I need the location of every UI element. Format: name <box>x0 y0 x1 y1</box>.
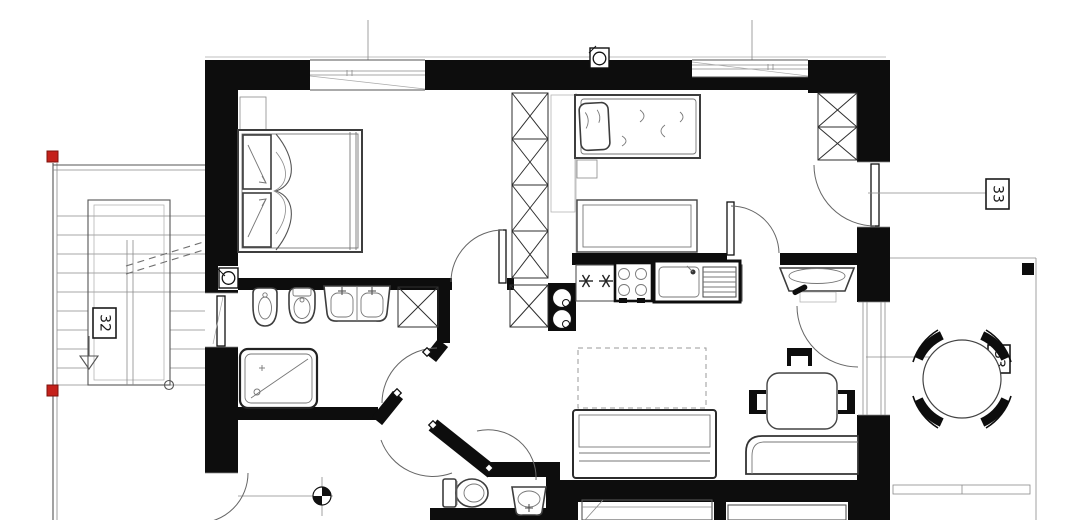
kitchen-wardrobe-x <box>510 285 548 327</box>
living-room <box>573 348 858 478</box>
stair-direction-arrow-icon <box>80 336 98 369</box>
single-bed <box>575 95 700 158</box>
sofa <box>573 410 716 478</box>
bidet <box>253 288 277 326</box>
bedroom2 <box>575 95 779 255</box>
terrace-marker <box>1022 263 1034 275</box>
kitchen <box>553 261 743 329</box>
vent-fan-icon <box>589 46 609 68</box>
nightstand <box>577 160 597 178</box>
dashed-outline <box>578 348 706 408</box>
dining-table <box>767 373 837 429</box>
stair-cut-dashed-line <box>126 240 210 274</box>
bedroom1-door <box>451 230 506 283</box>
shower <box>240 349 317 408</box>
bedroom2-door <box>727 202 779 255</box>
double-washbasin <box>324 286 390 321</box>
bench <box>746 436 858 474</box>
double-bed <box>238 130 362 252</box>
bathroom <box>240 286 438 408</box>
stair-landing <box>88 200 170 385</box>
wall-shelf <box>780 268 854 302</box>
terrace-table <box>923 340 1001 418</box>
landing-door <box>205 293 238 347</box>
building-axis-lines <box>205 20 886 60</box>
entry-door-label: 33 <box>990 185 1006 203</box>
wc-sink <box>512 487 546 515</box>
bedroom2-wardrobe <box>818 93 857 160</box>
red-marker-icon <box>47 385 58 396</box>
hob-burner-marks <box>579 275 613 287</box>
vent-fan-icon <box>218 268 238 288</box>
nightstand <box>240 97 266 131</box>
survey-benchmark-icon <box>238 477 333 516</box>
kitchen-sink <box>654 261 740 302</box>
pillow <box>243 135 271 189</box>
stair-treads <box>57 216 205 385</box>
entry-door <box>814 162 890 227</box>
exterior-door-swing <box>198 473 248 520</box>
terrace-door-swing <box>797 306 858 367</box>
wc-toilet <box>443 479 488 507</box>
toilet <box>289 288 315 323</box>
stair-label: 32 <box>97 314 113 332</box>
floor-plan: 32 <box>0 0 1067 520</box>
terrace-railing <box>893 485 1030 494</box>
pillow <box>243 193 271 247</box>
terrace: 33 <box>866 258 1036 520</box>
wardrobe-column <box>512 93 576 278</box>
cooktop <box>615 263 652 303</box>
window-top-right <box>692 60 808 77</box>
stairwell: 32 <box>53 163 210 520</box>
terrace-window <box>858 302 890 415</box>
window-top-left <box>310 60 425 90</box>
stair-label-box: 32 <box>93 308 116 338</box>
pillow <box>579 102 610 150</box>
entry-door-label-box: 33 <box>986 179 1009 209</box>
bedroom1 <box>238 97 506 283</box>
sideboard <box>577 200 697 252</box>
bathroom-cabinet-x <box>398 287 438 327</box>
red-marker-icon <box>47 151 58 162</box>
